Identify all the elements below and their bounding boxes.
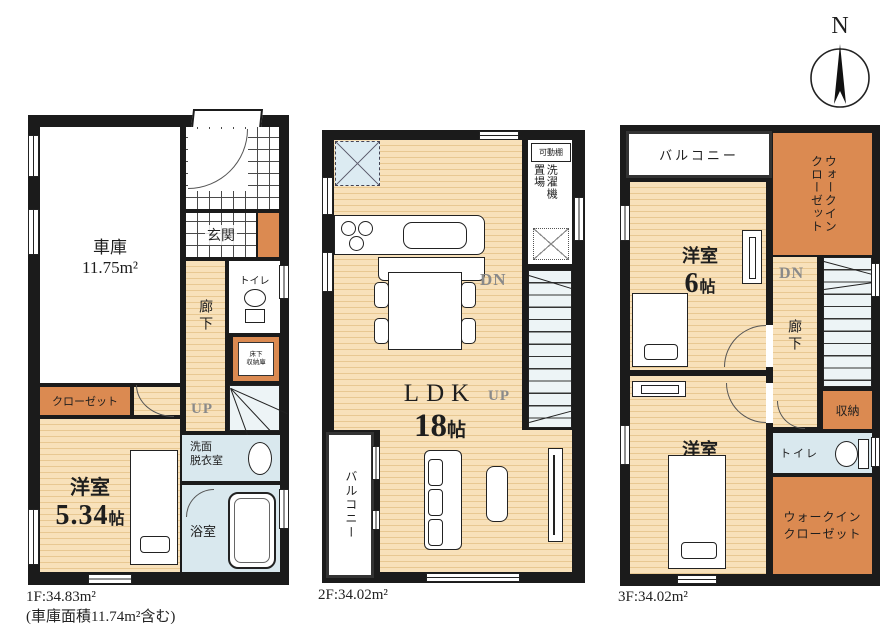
window — [479, 131, 519, 140]
floor1-caption: 1F:34.83m² (車庫面積11.74m²含む) — [26, 588, 175, 627]
washer-space-icon — [533, 228, 569, 260]
walkin-closet-bottom: ウォークイン クローゼット — [773, 477, 872, 574]
up-label-1f: UP — [191, 401, 213, 418]
floor1-area-text: 1F:34.83m² — [26, 588, 175, 608]
coffee-table-icon — [486, 466, 508, 522]
desk-inner — [641, 385, 679, 394]
bed-icon-3f-2 — [668, 455, 726, 569]
storage-3f: 収納 — [823, 391, 872, 429]
closet-label: クローゼット — [52, 393, 118, 409]
window — [677, 575, 717, 584]
floor3-caption: 3F:34.02m² — [618, 588, 688, 608]
toilet-bowl-icon — [835, 441, 858, 467]
tv-board-icon — [548, 448, 563, 542]
balcony-2f-label: バルコニー — [343, 470, 357, 540]
washbasin-icon — [248, 442, 272, 475]
pillow-icon — [681, 542, 717, 559]
garage-room: 車庫 11.75m² — [40, 127, 180, 383]
sofa-cushion — [428, 489, 443, 516]
window — [28, 209, 39, 255]
window — [574, 197, 584, 241]
sofa-icon — [424, 450, 462, 550]
ldk-label: LDK 18帖 — [370, 380, 510, 445]
stove-burner-icon — [358, 221, 373, 236]
window — [322, 252, 333, 292]
bedroom-1f-label: 洋室 5.34帖 — [40, 471, 140, 532]
dn-label-2f: DN — [480, 270, 507, 290]
window — [871, 263, 880, 297]
window — [620, 425, 630, 465]
closet-door-line — [749, 237, 756, 279]
pillow-icon — [644, 344, 678, 360]
closet-door-panel — [742, 230, 762, 284]
desk-icon — [632, 381, 686, 397]
balcony-2f: バルコニー — [326, 432, 374, 578]
window — [372, 446, 380, 480]
bathroom-door-arc — [186, 489, 214, 517]
floor2-plan: DN UP LDK 18帖 可動棚 洗濯機 置場 バルコニー — [322, 130, 585, 583]
dining-table — [388, 272, 462, 350]
stove-burner-icon — [349, 236, 364, 251]
sofa-cushion — [428, 519, 443, 546]
corridor-1f: 廊下 UP — [186, 261, 225, 431]
pillow-icon — [140, 536, 170, 553]
garage-label: 車庫 — [93, 233, 127, 258]
walkin-closet-bottom-label: ウォークイン クローゼット — [783, 509, 861, 541]
entrance-canopy — [191, 109, 263, 129]
window — [28, 509, 39, 565]
toilet-label-1f: トイレ — [240, 272, 270, 287]
bed-icon-3f-1 — [632, 293, 688, 367]
tv-board-line — [553, 455, 555, 535]
garage-area-label: 11.75m² — [82, 258, 138, 278]
chair-icon — [461, 318, 476, 344]
balcony-3f-label: バルコニー — [659, 145, 739, 164]
laundry-room: 可動棚 洗濯機 置場 — [528, 140, 572, 264]
window — [28, 135, 39, 177]
underfloor-storage-label: 床下 収納庫 — [238, 342, 274, 376]
toilet-bowl-icon — [244, 289, 266, 307]
chair-icon — [374, 282, 389, 308]
bedroom1-label: 洋室 6帖 — [660, 242, 740, 300]
bedroom-1f: 洋室 5.34帖 — [40, 419, 180, 572]
movable-shelf-label: 可動棚 — [531, 143, 571, 162]
window — [372, 510, 380, 530]
shoe-cabinet — [258, 213, 279, 257]
toilet-room-3f: トイレ — [773, 433, 872, 473]
stairs-3f — [823, 257, 872, 387]
floor1-plan: 車庫 11.75m² 玄関 廊下 UP トイレ 床下 収納庫 — [28, 115, 289, 585]
door-opening — [766, 325, 773, 367]
walkin-closet-top: ウォークイン クローゼット — [773, 133, 872, 255]
washroom: 洗面 脱衣室 — [182, 435, 280, 481]
stairs-2f — [528, 270, 572, 428]
floorplan-page: N 車庫 11.75m² 玄関 廊下 UP トイレ — [0, 0, 892, 633]
window — [279, 265, 289, 299]
kitchen-counter — [334, 215, 485, 255]
sofa-cushion — [428, 459, 443, 486]
skylight-hatch — [335, 141, 380, 186]
stove-burner-icon — [341, 221, 356, 236]
toilet-tank-icon — [245, 309, 265, 323]
window — [279, 489, 289, 529]
chair-icon — [461, 282, 476, 308]
corridor-3f-label: 廊下 — [785, 319, 801, 353]
entrance-hall: 玄関 — [186, 213, 256, 257]
underfloor-storage: 床下 収納庫 — [233, 337, 279, 381]
storage-label: 収納 — [835, 402, 859, 419]
bed-icon-1f — [130, 450, 178, 565]
window — [88, 574, 132, 584]
balcony-3f: バルコニー — [626, 131, 772, 178]
toilet-tank-icon — [858, 439, 869, 469]
dn-label-3f: DN — [779, 265, 804, 283]
corridor-label: 廊下 — [196, 299, 212, 333]
toilet-3f-label: トイレ — [780, 445, 819, 461]
bathroom: 浴室 — [182, 485, 280, 572]
entrance-label: 玄関 — [205, 225, 237, 245]
walkin-closet-top-label: ウォークイン クローゼット — [809, 155, 837, 233]
floor1-garage-note: (車庫面積11.74m²含む) — [26, 608, 175, 628]
window — [322, 177, 333, 215]
toilet-room-1f: トイレ — [229, 261, 280, 333]
door-opening — [766, 383, 773, 423]
window — [871, 437, 880, 467]
bathtub-icon — [228, 492, 276, 569]
window — [426, 573, 520, 582]
washroom-label: 洗面 脱衣室 — [190, 440, 223, 469]
bathroom-label: 浴室 — [190, 521, 216, 540]
kitchen-sink-icon — [403, 222, 467, 249]
ldk-room-lower — [380, 430, 572, 572]
compass: N — [800, 12, 880, 112]
compass-needle-icon — [800, 34, 880, 112]
window — [620, 205, 630, 241]
floor3-plan: バルコニー ウォークイン クローゼット 洋室 6帖 DN 廊下 — [620, 125, 880, 586]
bathtub-inner — [234, 498, 270, 563]
chair-icon — [374, 318, 389, 344]
floor2-caption: 2F:34.02m² — [318, 586, 388, 606]
closet-1f: クローゼット — [40, 387, 130, 415]
laundry-label: 洗濯機 置場 — [532, 164, 557, 200]
